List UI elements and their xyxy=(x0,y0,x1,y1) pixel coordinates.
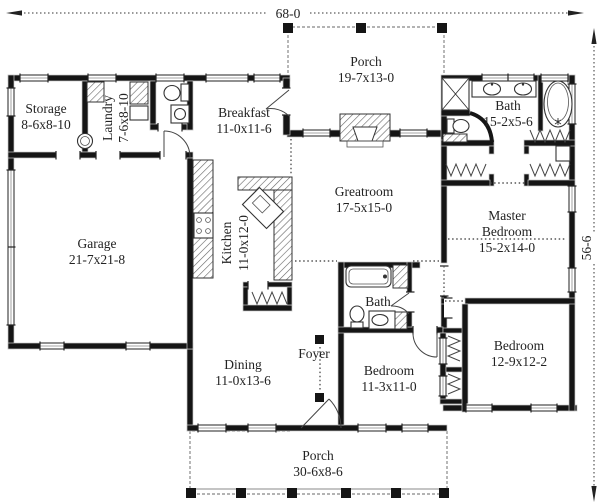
half-bath-fixtures xyxy=(164,84,189,123)
fireplace xyxy=(340,114,390,147)
door-opening xyxy=(158,123,182,132)
label-bedroom-small-name: Bedroom xyxy=(364,363,415,378)
label-master-bedroom-name1: Master xyxy=(488,208,526,223)
label-kitchen-name: Kitchen xyxy=(219,221,234,264)
door-opening xyxy=(96,151,120,160)
label-dining-name: Dining xyxy=(224,357,262,372)
label-dining-dims: 11-0x13-6 xyxy=(215,373,271,388)
label-master-bedroom-name2: Bedroom xyxy=(482,224,533,239)
label-bedroom-corner-name: Bedroom xyxy=(494,338,545,353)
label-bedroom-small-dims: 11-3x11-0 xyxy=(361,379,416,394)
label-greatroom-name: Greatroom xyxy=(335,184,394,199)
dim-width-label: 68-0 xyxy=(276,6,301,21)
label-breakfast-dims: 11-0x11-6 xyxy=(216,121,271,136)
label-storage-dims: 8-6x8-10 xyxy=(21,117,71,132)
label-porch-bottom-dims: 30-6x8-6 xyxy=(293,464,343,479)
door-opening xyxy=(56,151,80,160)
label-bedroom-corner-dims: 12-9x12-2 xyxy=(491,354,547,369)
label-storage-name: Storage xyxy=(25,101,66,116)
label-greatroom-dims: 17-5x15-0 xyxy=(336,200,392,215)
label-foyer-name: Foyer xyxy=(298,346,330,361)
label-master-bedroom-dims: 15-2x14-0 xyxy=(479,240,535,255)
label-porch-top-dims: 19-7x13-0 xyxy=(338,70,394,85)
label-laundry-dims: 7-6x8-10 xyxy=(116,93,131,143)
closet-rod-zigzag xyxy=(252,292,287,304)
door-opening xyxy=(413,326,437,335)
label-garage-name: Garage xyxy=(78,236,117,251)
label-breakfast-name: Breakfast xyxy=(218,105,270,120)
door-opening xyxy=(406,292,415,312)
floor-plan-canvas: 68-0 56-6 Storage 8-6x8-10 Laundry 7-6x8… xyxy=(0,0,600,504)
label-master-bath-name: Bath xyxy=(495,98,521,113)
label-master-bath-dims: 15-2x5-6 xyxy=(483,114,533,129)
label-garage-dims: 21-7x21-8 xyxy=(69,252,125,267)
label-porch-top-name: Porch xyxy=(350,54,382,69)
closet-rod-zigzag xyxy=(530,164,570,176)
door-opening xyxy=(248,281,268,290)
floor-plan: 68-0 56-6 Storage 8-6x8-10 Laundry 7-6x8… xyxy=(0,0,600,504)
closet-rod-zigzag xyxy=(448,374,460,394)
closet-rod-zigzag xyxy=(448,336,460,361)
closet-rod-zigzag xyxy=(446,164,486,176)
label-hall-bath-name: Bath xyxy=(365,294,391,309)
label-laundry-name: Laundry xyxy=(100,95,115,141)
dim-height-label: 56-6 xyxy=(579,235,594,260)
label-kitchen-dims: 11-0x12-0 xyxy=(236,215,251,271)
label-porch-bottom-name: Porch xyxy=(302,448,334,463)
